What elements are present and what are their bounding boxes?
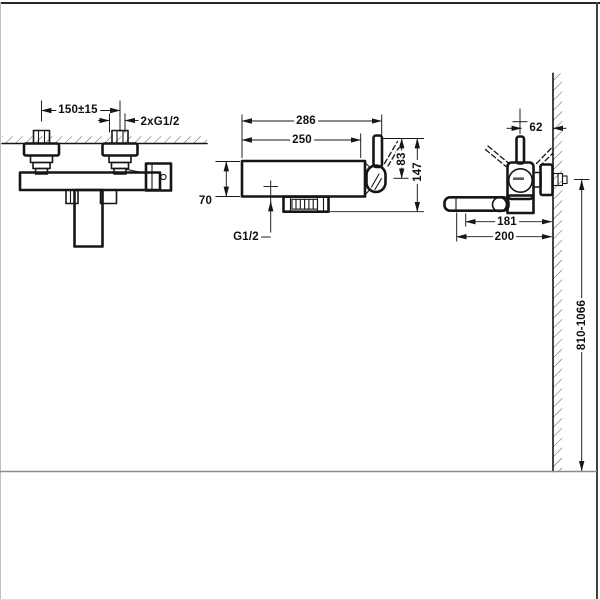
cartridge-circle [509,169,532,192]
dim-body-width: 250 [290,133,314,145]
dim-lever-height: 83 [395,150,407,167]
wall-hatching-side [553,73,562,471]
dim-inlet-thread-lines [98,114,140,133]
down-spout [66,190,117,247]
dim-mounting-height: 810-1066 [575,298,587,352]
dim-lever-to-wall: 62 [527,121,544,133]
dim-outlet-leader-lines [258,181,278,238]
dim-shower-outlet: G1/2 [231,231,261,243]
mixer-body-front1 [20,173,160,191]
dim-spout-reach: 200 [493,230,517,242]
technical-drawing [0,0,600,600]
dim-body-height: 70 [197,194,214,206]
dim-overall-height-lines [330,139,424,212]
dim-inlet-spacing: 150±15 [56,103,100,115]
lever-handle-side [517,137,525,164]
spec-sheet-page: 150±15 2xG1/2 286 250 83 147 70 G1/2 62 … [0,0,600,600]
body-view [216,115,425,238]
mixer-body-side [508,163,534,200]
spout-arm [445,197,509,210]
dim-overall-width: 286 [294,114,318,126]
body-end-cap [146,164,171,191]
brand-mark [513,177,524,180]
dim-inlet-thread: 2xG1/2 [139,115,182,127]
shower-outlet [284,197,329,212]
mixer-body-front2 [242,161,365,197]
dim-overall-height: 147 [411,160,423,184]
lever-handle-front [374,136,383,168]
dim-body-height-lines [216,162,241,197]
knob-shading [372,174,382,190]
dim-outlet-reach: 181 [495,215,519,227]
